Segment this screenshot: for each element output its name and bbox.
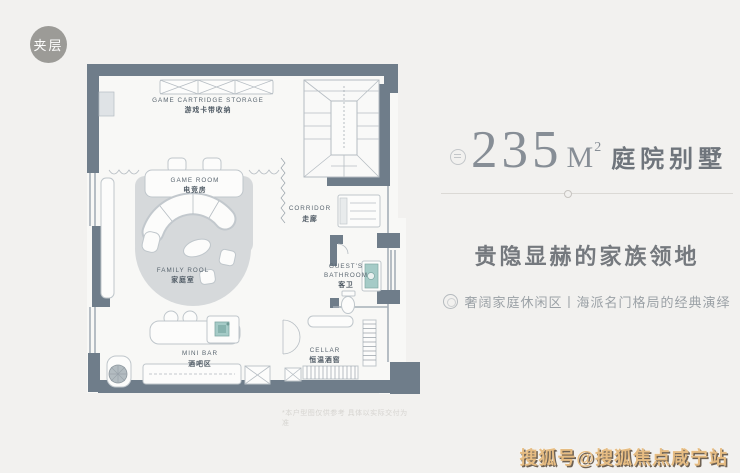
guest-bathroom-label-en1: GUEST'S bbox=[329, 263, 363, 270]
cellar-label-zh: 恒温酒窖 bbox=[309, 355, 340, 364]
area-row: 235 M 2 庭院别墅 bbox=[450, 124, 740, 177]
corridor-label-en: CORRIDOR bbox=[289, 205, 331, 212]
mini-bar-label-en: MINI BAR bbox=[182, 350, 218, 357]
area-seal-icon bbox=[450, 149, 466, 165]
game-room-label-zh: 电竞房 bbox=[183, 185, 206, 194]
game-room-label-en: GAME ROOM bbox=[171, 177, 220, 184]
family-room-label-zh: 家庭室 bbox=[171, 275, 194, 284]
area-title-suffix: 庭院别墅 bbox=[611, 139, 727, 174]
plant bbox=[107, 356, 131, 387]
floor-badge: 夹层 bbox=[30, 26, 67, 63]
subline-row: 奢阔家庭休闲区丨海派名门格局的经典演绎 bbox=[440, 292, 734, 311]
equipment-unit bbox=[338, 195, 380, 227]
watermark: 搜狐号@搜狐焦点咸宁站 bbox=[519, 444, 728, 470]
staircase bbox=[304, 80, 379, 177]
guest-bathroom-label-zh: 客卫 bbox=[337, 280, 354, 289]
family-room-label-en: FAMILY ROOL bbox=[157, 267, 209, 274]
cellar-label-en: CELLAR bbox=[310, 347, 341, 354]
divider bbox=[441, 193, 733, 194]
area-unit: M bbox=[567, 141, 594, 175]
mini-bar-label-zh: 酒吧区 bbox=[188, 359, 211, 368]
headline: 贵隐显赫的家族领地 bbox=[440, 239, 734, 271]
page: 夹层 bbox=[0, 0, 740, 473]
floor-badge-label: 夹层 bbox=[33, 35, 63, 54]
floorplan: GAME CARTRIDGE STORAGE 游戏卡带收纳 GAME ROOM … bbox=[85, 58, 425, 403]
storage-shelf bbox=[160, 80, 273, 94]
corridor-label-zh: 走廊 bbox=[301, 214, 318, 223]
area-exponent: 2 bbox=[594, 140, 601, 156]
plan-disclaimer: *本户型图仅供参考 具体以实际交付为准 bbox=[282, 408, 412, 428]
tall-cabinet bbox=[101, 178, 114, 298]
guest-bathroom-label-en2: BATHROOM bbox=[324, 272, 368, 279]
wall-cabinet bbox=[99, 92, 114, 116]
divider-ornament-icon bbox=[564, 190, 572, 198]
area-value: 235 bbox=[471, 124, 563, 177]
storage-label-zh: 游戏卡带收纳 bbox=[185, 105, 232, 114]
storage-label-en: GAME CARTRIDGE STORAGE bbox=[152, 97, 264, 104]
subline-seal-icon bbox=[443, 294, 458, 309]
subline-text: 奢阔家庭休闲区丨海派名门格局的经典演绎 bbox=[464, 292, 730, 311]
